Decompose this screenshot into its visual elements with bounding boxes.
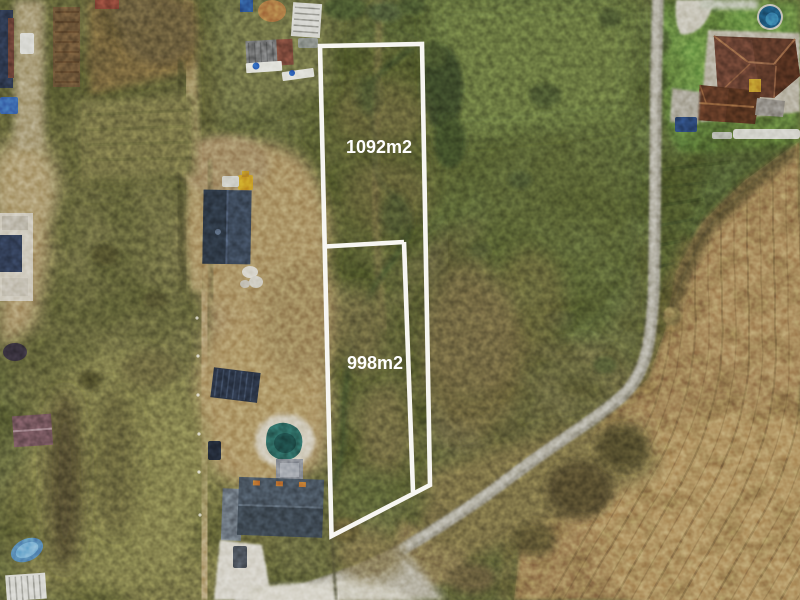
svg-text:1092m2: 1092m2: [346, 137, 412, 157]
svg-text:998m2: 998m2: [347, 353, 403, 373]
